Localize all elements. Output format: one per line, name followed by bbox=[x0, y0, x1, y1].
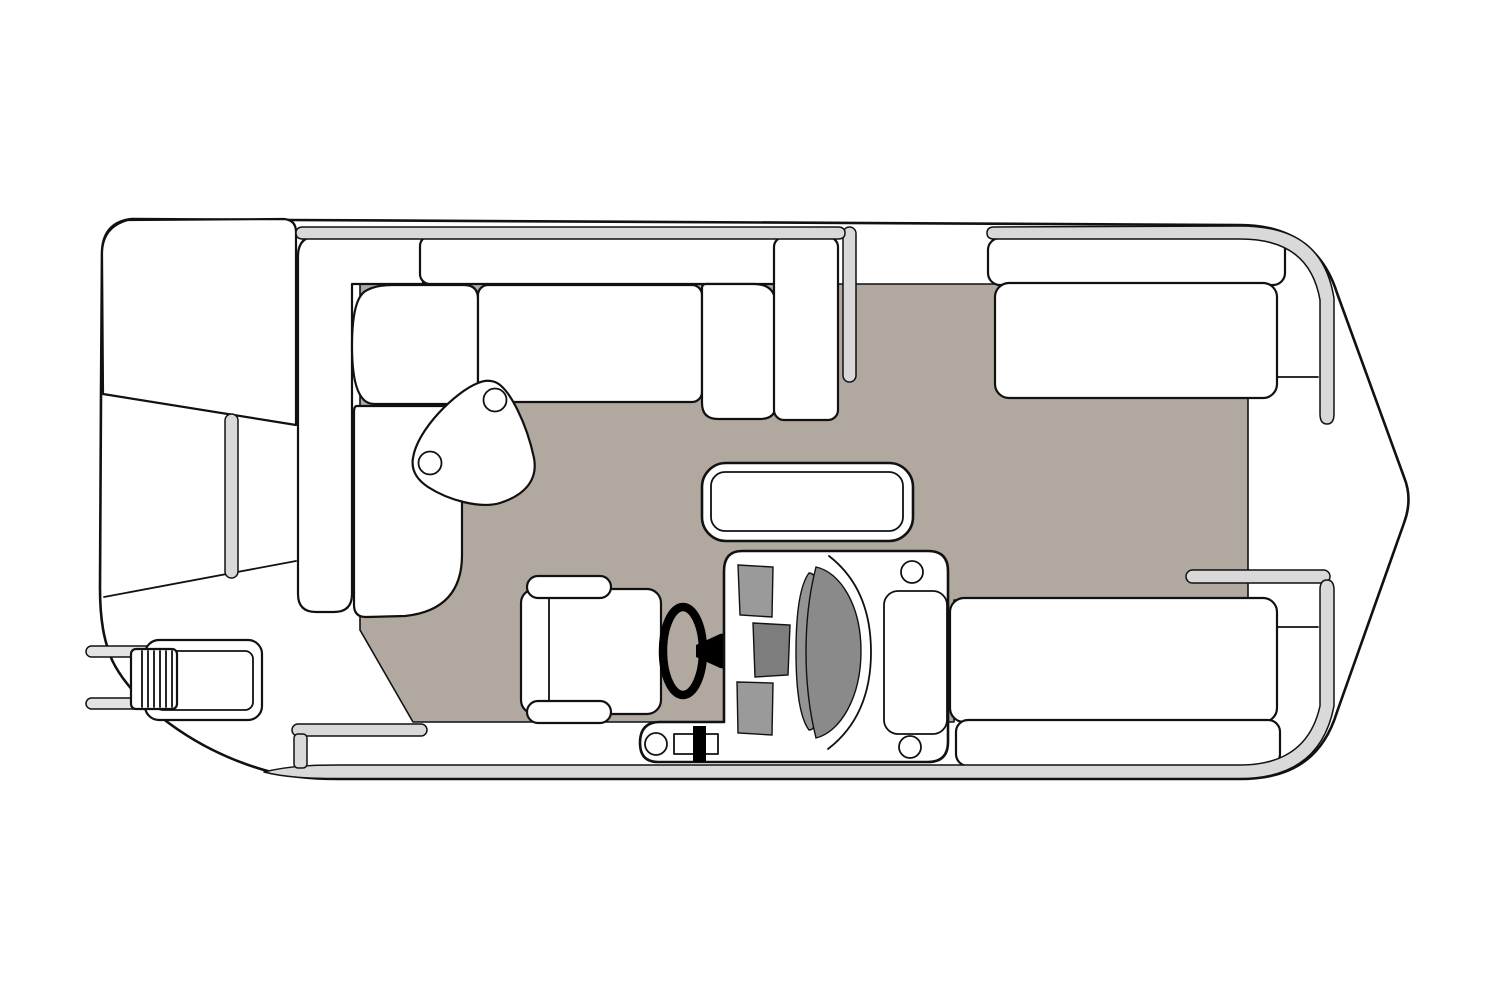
bow-bench-port-backrest bbox=[988, 238, 1285, 285]
console-cupholder-icon bbox=[645, 733, 667, 755]
console-cupholder-icon bbox=[899, 736, 921, 758]
boarding-ladder-icon bbox=[131, 649, 177, 709]
dash-gauge bbox=[753, 623, 790, 677]
motor-pod bbox=[102, 219, 296, 425]
stern-rail-post bbox=[225, 414, 238, 578]
port-sofa-deep-cushion bbox=[702, 284, 776, 419]
floor-plan-canvas bbox=[0, 0, 1505, 1003]
cup-holder-icon bbox=[484, 389, 507, 412]
side-gate-post bbox=[843, 227, 856, 382]
captains-chair-armrest bbox=[527, 701, 611, 723]
bow-gate-bar bbox=[1186, 570, 1330, 583]
bow-bench-port-seat bbox=[995, 283, 1277, 398]
captains-chair-seat bbox=[521, 589, 661, 714]
top-rail-stern-section bbox=[296, 227, 845, 239]
dash-vent bbox=[738, 565, 773, 617]
cup-holder-icon bbox=[419, 452, 442, 475]
port-sofa-long-cushion bbox=[478, 285, 702, 402]
port-sofa-top-backrest bbox=[420, 236, 788, 284]
throttle-lever bbox=[693, 726, 706, 762]
stern-gate-bar bbox=[292, 724, 427, 736]
console-pedestal bbox=[884, 591, 947, 734]
stern-gate-post bbox=[294, 734, 307, 768]
bow-bench-starboard-seat bbox=[950, 598, 1277, 722]
dash-vent bbox=[737, 682, 773, 735]
captains-chair-armrest bbox=[527, 576, 611, 598]
bow-bench-starboard-backrest bbox=[956, 720, 1280, 766]
port-sofa-corner-cushion bbox=[352, 285, 478, 404]
pontoon-boat-floor-plan bbox=[0, 0, 1505, 1003]
port-sofa-end-piece bbox=[774, 237, 838, 420]
cooler-table-inner bbox=[711, 472, 903, 531]
console-cupholder-icon bbox=[901, 561, 923, 583]
